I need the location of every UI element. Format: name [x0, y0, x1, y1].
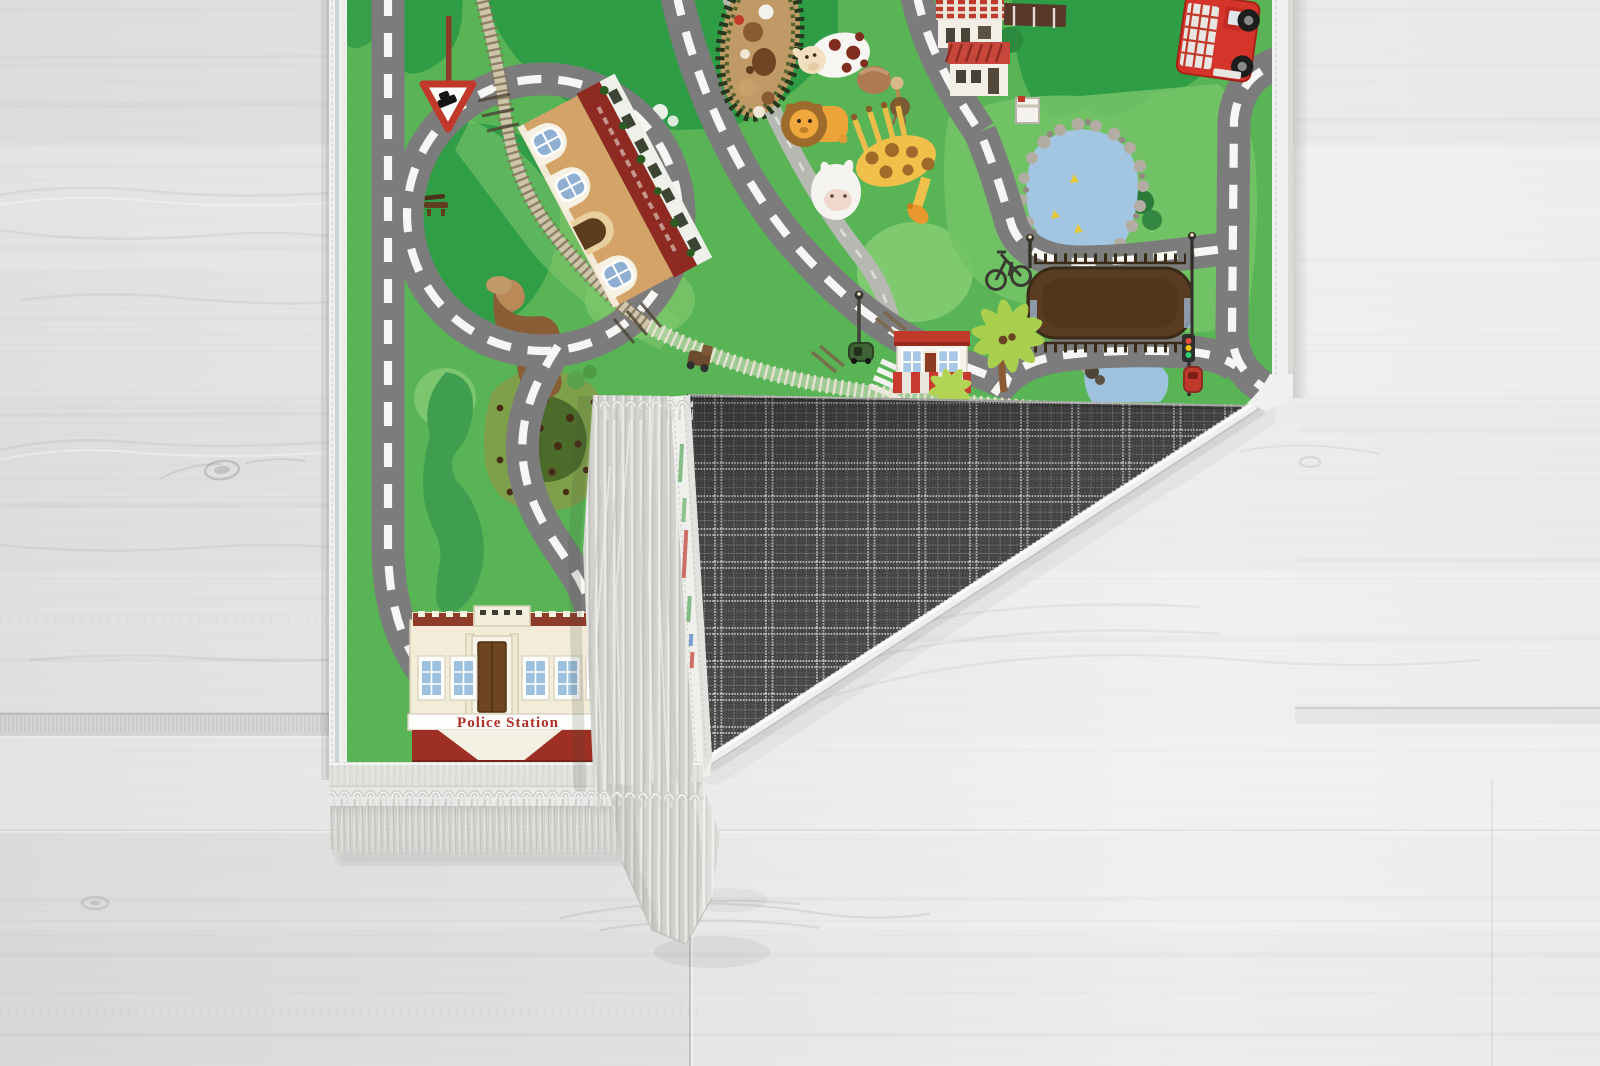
svg-text:Police Station: Police Station	[457, 715, 559, 731]
